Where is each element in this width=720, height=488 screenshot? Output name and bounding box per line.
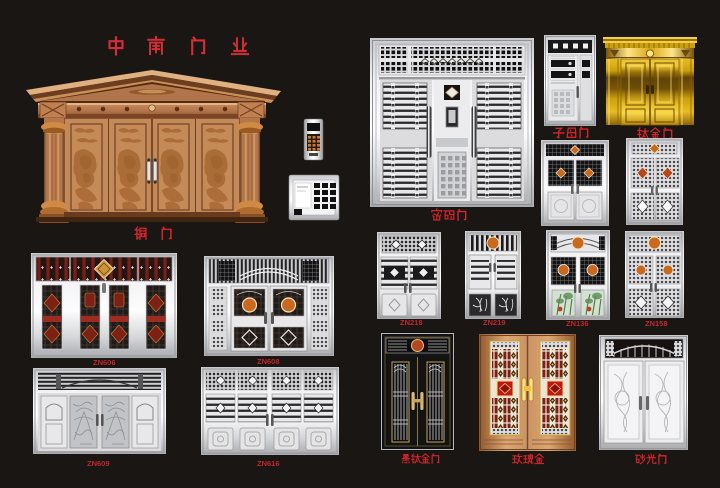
svg-text:ZN219: ZN219 [483,318,506,327]
svg-text:ZN136: ZN136 [566,319,589,328]
svg-text:ZN609: ZN609 [87,459,110,468]
svg-text:ZN158: ZN158 [645,319,668,328]
svg-text:ZN608: ZN608 [257,357,280,366]
svg-text:ZN218: ZN218 [400,318,423,327]
svg-text:ZN606: ZN606 [93,358,116,367]
svg-text:ZN616: ZN616 [257,459,280,468]
